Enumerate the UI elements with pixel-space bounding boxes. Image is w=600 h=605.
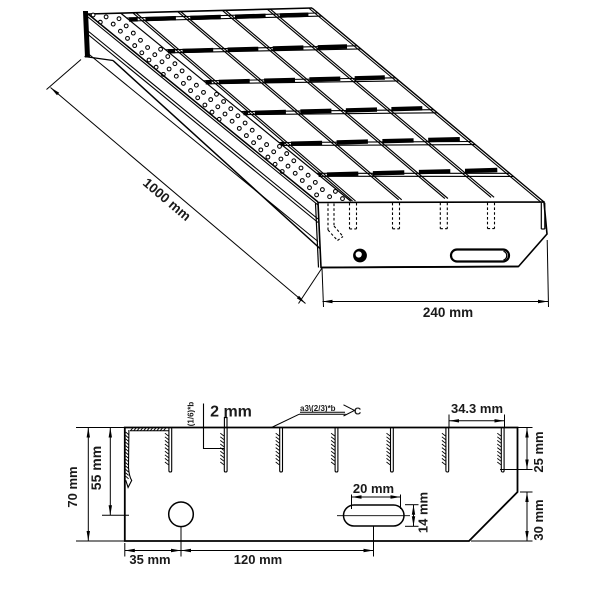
svg-text:25 mm: 25 mm <box>531 431 546 472</box>
svg-text:34.3 mm: 34.3 mm <box>451 401 503 416</box>
svg-text:20 mm: 20 mm <box>353 481 394 496</box>
svg-text:2 mm: 2 mm <box>210 404 252 421</box>
svg-text:30 mm: 30 mm <box>531 499 546 540</box>
svg-text:120 mm: 120 mm <box>234 552 282 567</box>
svg-text:C: C <box>354 407 361 418</box>
svg-text:(1/6)*b: (1/6)*b <box>187 402 196 427</box>
svg-text:70 mm: 70 mm <box>65 466 80 507</box>
svg-text:a3\(2/3)*b: a3\(2/3)*b <box>300 404 336 413</box>
svg-text:35 mm: 35 mm <box>129 552 170 567</box>
svg-text:55 mm: 55 mm <box>88 446 104 490</box>
svg-text:14 mm: 14 mm <box>416 492 431 533</box>
svg-text:240 mm: 240 mm <box>423 305 473 320</box>
